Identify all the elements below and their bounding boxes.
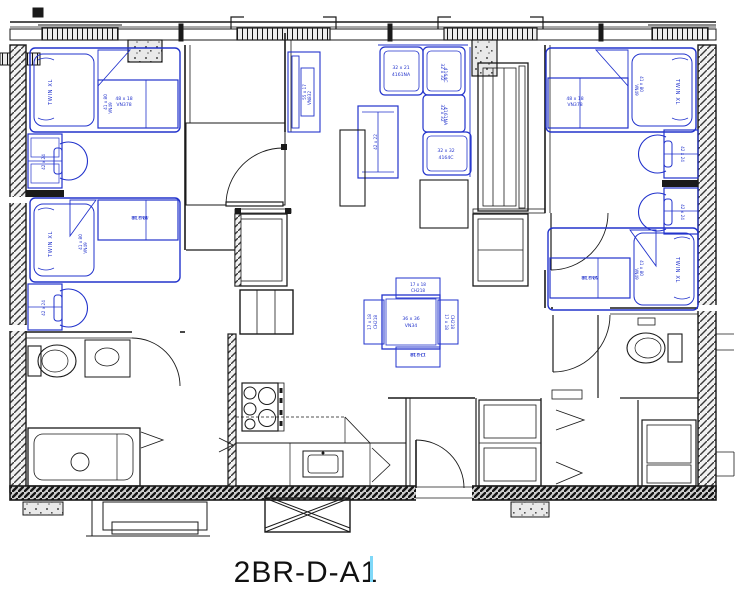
toilet-left — [28, 345, 76, 377]
chest-sku-label: VN378 — [116, 102, 131, 108]
chest-sku-label: VN378 — [582, 274, 597, 280]
bathtub-left — [28, 428, 140, 486]
entry-door — [416, 440, 464, 488]
sofa-label: 32 x 32 — [437, 148, 454, 154]
concrete-column-left — [128, 40, 162, 62]
chair-right-2 — [639, 193, 672, 231]
exterior-walls — [0, 8, 734, 536]
shaft-x-box — [265, 498, 350, 532]
dining-chair-label: 17 x 18 — [367, 314, 372, 330]
kitchen-sink — [303, 451, 343, 477]
desk-dim-label: 42 x 24 — [680, 146, 685, 162]
black-furniture — [340, 130, 468, 228]
desk-dim-label: 42 x 24 — [41, 300, 46, 316]
kitchen — [236, 383, 406, 486]
plan-title: 2BR-D-A1 — [234, 556, 379, 589]
dining-chair-label: 17 x 18 — [444, 314, 449, 330]
dining-table-label: VN34 — [405, 323, 418, 329]
right-bed-1 — [546, 48, 696, 132]
vanity-left — [85, 340, 130, 377]
right-desk-2 — [639, 188, 698, 234]
right-bedroom-door — [545, 45, 608, 308]
entry-vestibule — [388, 398, 541, 488]
bed-label: TWIN XL — [48, 231, 54, 258]
right-bathroom — [627, 318, 696, 486]
bed-sku-label: VN49 — [634, 268, 639, 280]
bed-sku-label: VN49 — [634, 84, 639, 96]
dining-chair-label: CH218 — [450, 315, 455, 329]
refrigerator — [240, 290, 293, 334]
left-desk-2 — [28, 284, 87, 330]
left-bathroom-door — [26, 332, 185, 448]
entry-closet — [479, 400, 541, 486]
toilet-right — [627, 318, 682, 363]
corridor-elements — [23, 498, 549, 536]
desk-dim-label: 42 x 24 — [41, 154, 46, 170]
furniture-labels: TWIN XL 41 x 80 VN49 48 x 18 VN378 TWIN … — [41, 63, 685, 357]
window-band-3 — [438, 17, 543, 40]
right-closet — [473, 63, 545, 286]
dining-chair-label: CH218 — [373, 315, 378, 329]
sofa-label: 4164C — [439, 155, 454, 161]
floor-plan-drawing: TWIN XL 41 x 80 VN49 48 x 18 VN378 TWIN … — [0, 0, 736, 600]
right-wall — [697, 45, 734, 492]
sofa-label: 4164C — [442, 68, 448, 83]
chest-sku-label: VN378 — [132, 214, 147, 220]
desk-dim-label: 42 x 24 — [680, 204, 685, 220]
left-bedroom-door — [186, 123, 287, 206]
end-table — [420, 180, 468, 228]
bed-label: TWIN XL — [48, 79, 54, 106]
left-desk-1 — [28, 134, 87, 188]
tv-sku-label: VN832 — [307, 91, 312, 105]
sofa-label: 4161NA — [392, 72, 411, 78]
sofa-sectional — [378, 45, 471, 177]
side-table — [340, 130, 365, 206]
chest-dim-label: 48 x 18 — [115, 96, 132, 102]
chest-sku-label: VN378 — [567, 102, 582, 108]
right-desk-1 — [639, 130, 698, 178]
sofa-label: 32 x 21 — [392, 65, 409, 71]
coffee-table-label: 42 x 22 — [373, 134, 378, 150]
bed-label: TWIN XL — [674, 78, 680, 105]
sofa-label: 4161NA — [442, 107, 448, 126]
bottom-wall — [10, 485, 716, 501]
dining-chair-label: CH218 — [411, 352, 425, 357]
bed-sku-label: VN49 — [83, 242, 88, 254]
dining-table-label: 36 x 36 — [402, 316, 419, 322]
shower-right — [642, 420, 696, 486]
stove — [242, 383, 284, 431]
text-caret — [370, 556, 373, 582]
bed-label: TWIN XL — [674, 256, 680, 283]
chest-dim-label: 48 x 18 — [566, 96, 583, 102]
chair-left-2 — [54, 289, 87, 327]
coffee-table — [358, 106, 398, 178]
bed-sku-label: VN49 — [108, 102, 113, 114]
window-band-2 — [231, 17, 336, 40]
dining-chair-label: 17 x 18 — [410, 282, 426, 287]
dining-chair-label: CH218 — [411, 288, 425, 293]
left-closet — [235, 208, 291, 286]
left-bathroom — [28, 340, 140, 486]
floor-plan-page: TWIN XL 41 x 80 VN49 48 x 18 VN378 TWIN … — [0, 0, 736, 600]
